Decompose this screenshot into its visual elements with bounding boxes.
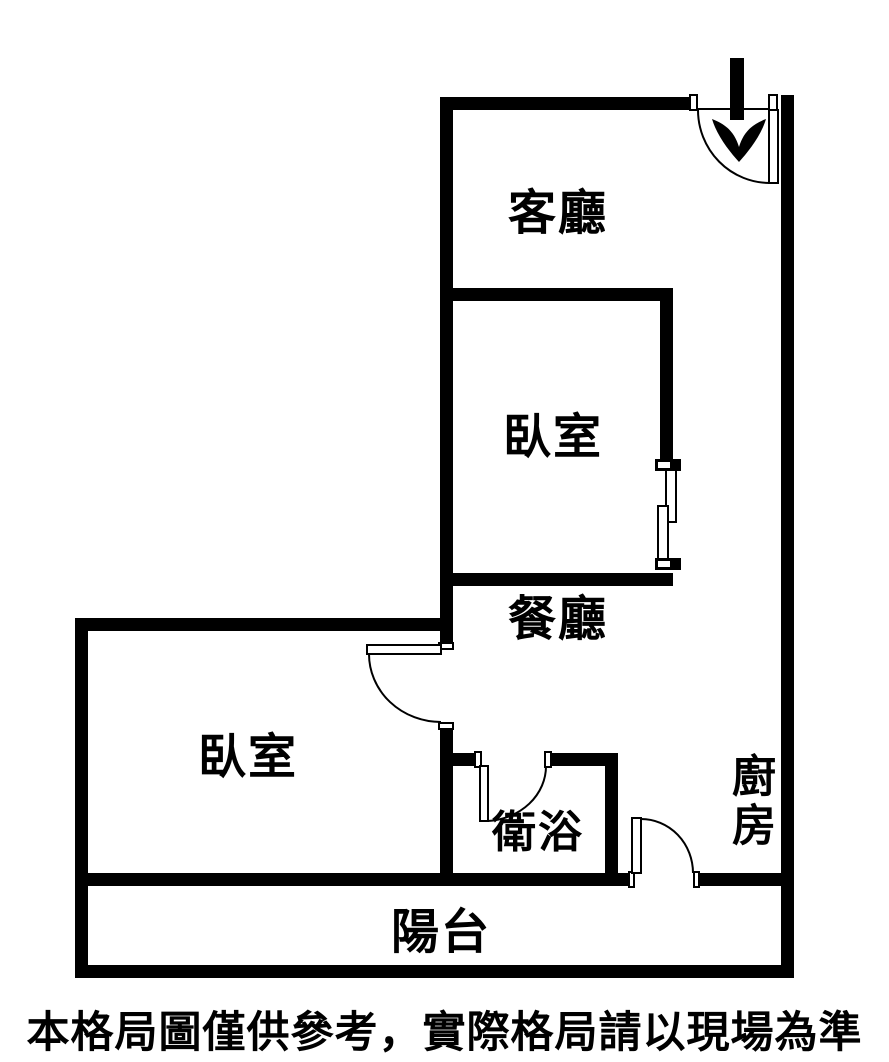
- bedroom-door-leaf: [367, 645, 441, 654]
- room-label-balcony: 陽台: [391, 908, 491, 958]
- room-label-living: 客廳: [508, 189, 608, 239]
- room-label-dining: 餐廳: [508, 595, 608, 645]
- kitchen-door-leaf: [632, 818, 641, 873]
- bedroom-door-arc: [369, 654, 441, 722]
- floor-plan: 客廳 臥室 餐廳 臥室 衛浴 廚房 陽台 本格局圖僅供參考，實際格局請以現場為準: [0, 0, 889, 1062]
- kitchen-door-arc: [641, 819, 693, 873]
- room-label-bathroom: 衛浴: [492, 810, 584, 856]
- room-label-bedroom-upper: 臥室: [503, 413, 603, 463]
- plan-linework: [0, 0, 889, 1062]
- disclaimer-text: 本格局圖僅供參考，實際格局請以現場為準: [0, 998, 889, 1060]
- sliding-window: [655, 459, 681, 570]
- bathroom-door-leaf: [480, 766, 488, 821]
- entrance-door-leaf: [769, 110, 778, 183]
- room-label-bedroom-left: 臥室: [198, 733, 298, 783]
- room-label-kitchen: 廚房: [728, 753, 780, 852]
